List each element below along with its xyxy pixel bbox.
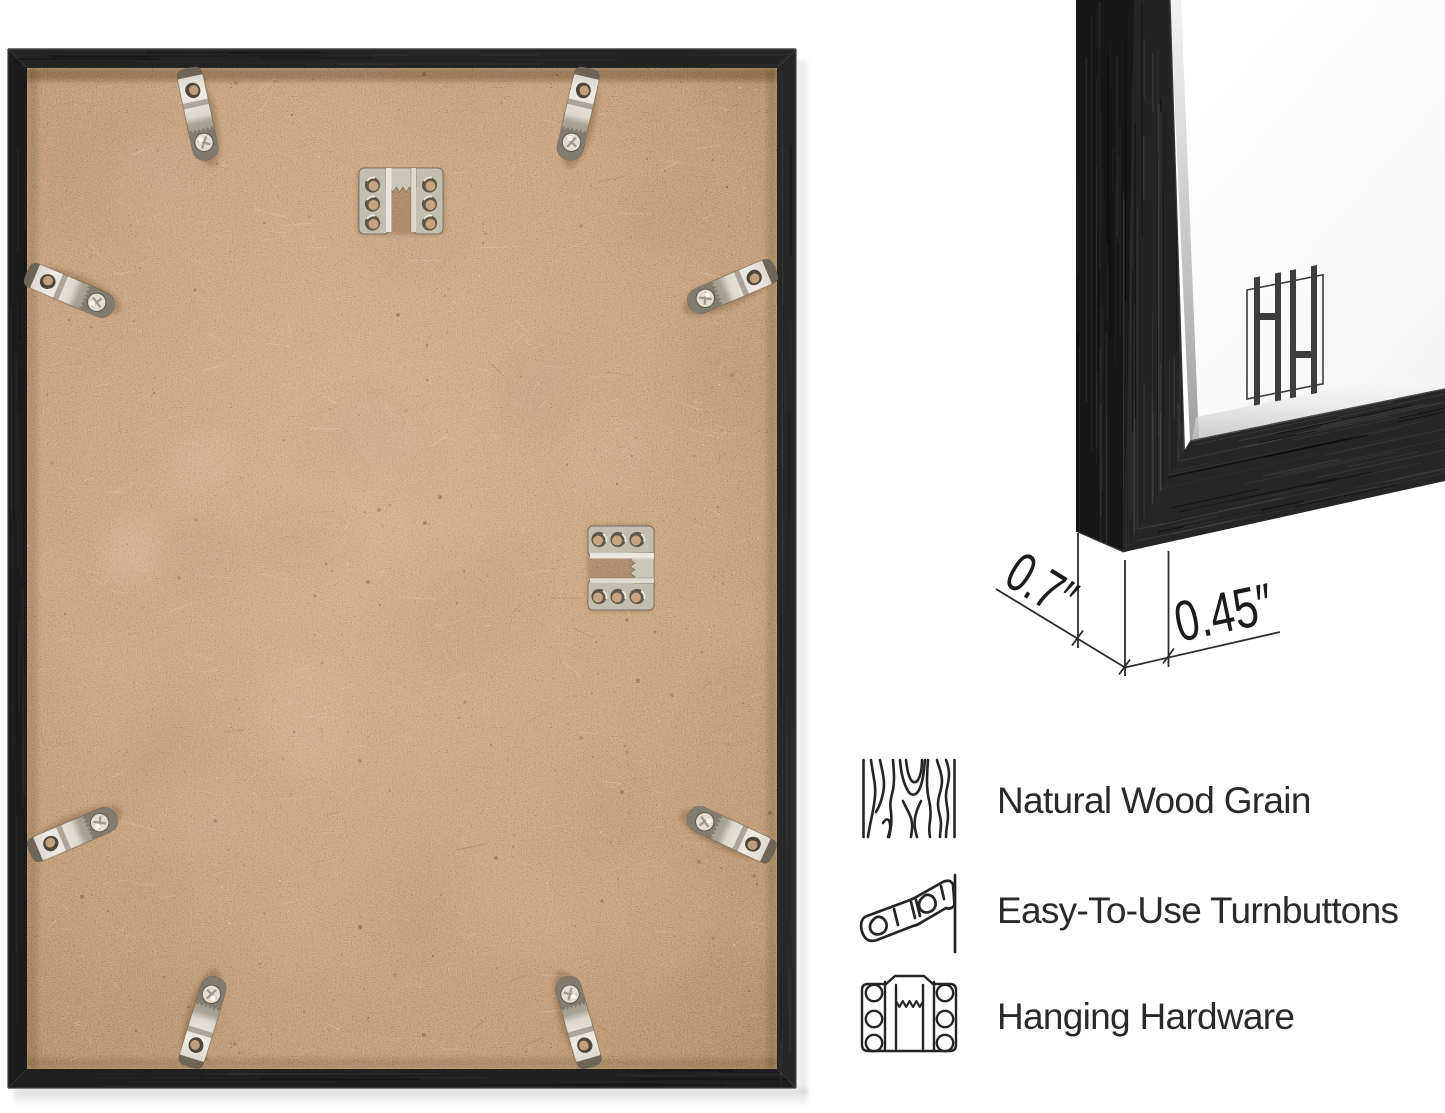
svg-text:Easy-To-Use Turnbuttons: Easy-To-Use Turnbuttons xyxy=(997,890,1399,931)
svg-text:Hanging Hardware: Hanging Hardware xyxy=(997,996,1294,1037)
svg-text:Natural Wood Grain: Natural Wood Grain xyxy=(997,780,1311,821)
